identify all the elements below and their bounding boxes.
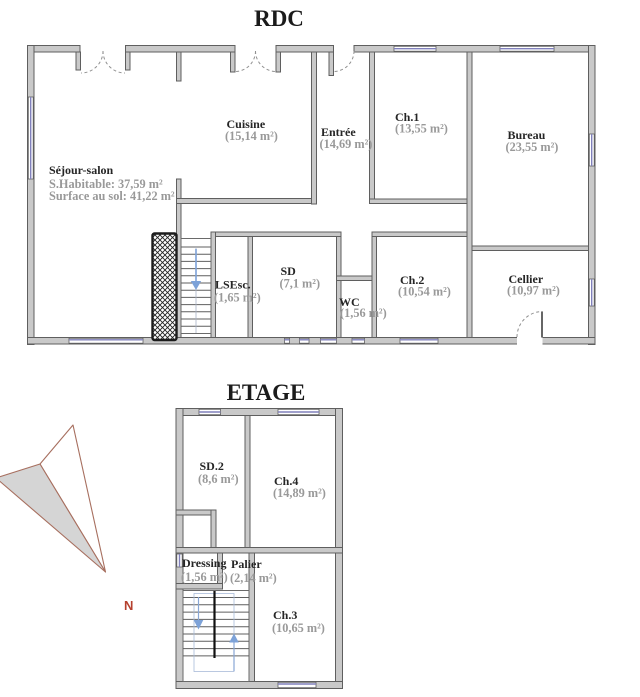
- svg-text:(2,14 m²): (2,14 m²): [230, 571, 277, 585]
- svg-text:LSEsc.: LSEsc.: [215, 278, 251, 292]
- svg-text:N: N: [124, 598, 133, 613]
- svg-text:Palier: Palier: [231, 557, 262, 571]
- svg-text:(1,56 m²): (1,56 m²): [181, 570, 228, 584]
- svg-text:RDC: RDC: [254, 6, 304, 31]
- svg-text:(10,54 m²): (10,54 m²): [398, 285, 451, 299]
- svg-text:(13,55 m²): (13,55 m²): [395, 122, 448, 136]
- svg-text:Séjour-salon: Séjour-salon: [49, 163, 114, 177]
- svg-text:(10,65 m²): (10,65 m²): [272, 621, 325, 635]
- svg-text:(15,14 m²): (15,14 m²): [225, 129, 278, 143]
- svg-text:(10,97 m²): (10,97 m²): [507, 284, 560, 298]
- svg-text:Ch.3: Ch.3: [273, 608, 297, 622]
- svg-text:(7,1 m²): (7,1 m²): [280, 277, 321, 291]
- svg-text:(8,6 m²): (8,6 m²): [198, 472, 239, 486]
- svg-text:(14,89 m²): (14,89 m²): [273, 486, 326, 500]
- svg-text:Dressing: Dressing: [182, 556, 226, 570]
- svg-text:ETAGE: ETAGE: [227, 380, 306, 405]
- svg-text:(23,55 m²): (23,55 m²): [506, 140, 559, 154]
- svg-text:(1,56 m²): (1,56 m²): [340, 306, 387, 320]
- svg-text:(14,69 m²): (14,69 m²): [320, 137, 373, 151]
- svg-text:Surface au sol: 41,22 m²: Surface au sol: 41,22 m²: [49, 189, 175, 203]
- svg-text:SD.2: SD.2: [200, 459, 224, 473]
- svg-text:(1,65 m²): (1,65 m²): [214, 291, 261, 305]
